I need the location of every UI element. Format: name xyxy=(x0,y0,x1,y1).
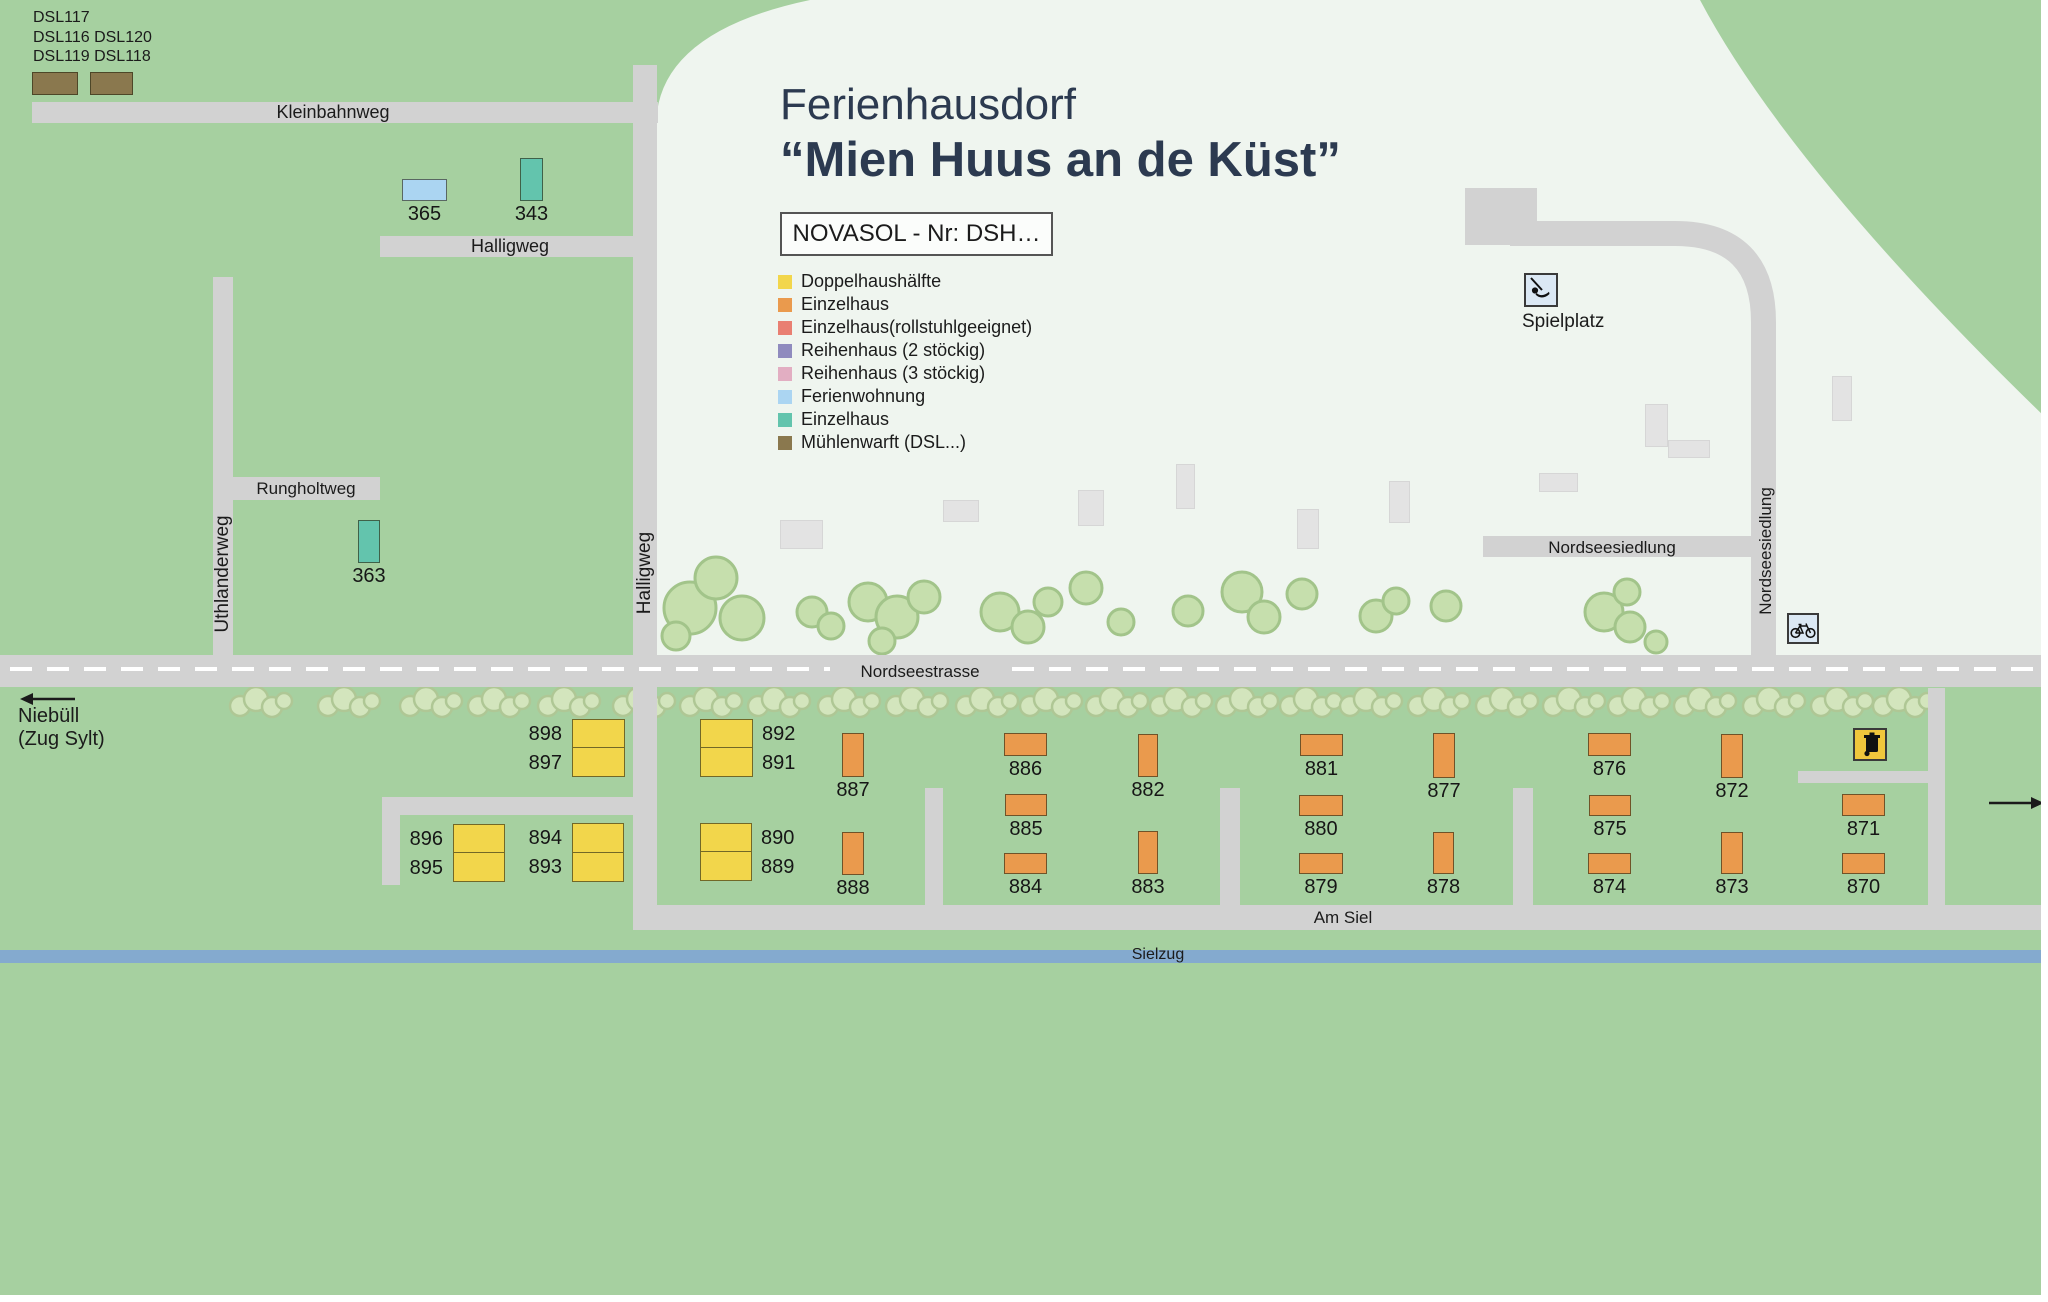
tree xyxy=(1230,687,1254,711)
tree xyxy=(500,697,520,717)
tree xyxy=(613,696,633,716)
tree xyxy=(876,596,918,638)
tree xyxy=(514,693,530,709)
tree xyxy=(1843,697,1863,717)
nordseesiedlung-curve-road xyxy=(1510,234,1764,658)
road-center-dash-left xyxy=(10,667,830,671)
tree xyxy=(1431,591,1461,621)
tree-group-row xyxy=(230,687,1935,717)
page-title-line1: Ferienhausdorf xyxy=(780,80,1076,130)
tree xyxy=(797,597,827,627)
house-number: 343 xyxy=(492,203,572,226)
tree xyxy=(1873,696,1893,716)
building xyxy=(780,520,823,549)
waste-bin-glyph xyxy=(1857,731,1884,758)
tree xyxy=(1248,601,1280,633)
legend-item: Mühlenwarft (DSL...) xyxy=(778,431,1032,454)
tree xyxy=(1020,696,1040,716)
dsl-line: DSL117 xyxy=(33,8,152,28)
tree xyxy=(762,687,786,711)
double-house-divider xyxy=(573,720,624,748)
tree xyxy=(1386,693,1402,709)
waste-bin-icon xyxy=(1853,728,1887,761)
village-light-area xyxy=(657,0,2048,655)
destination-label-niebuell: Niebüll xyxy=(18,705,79,728)
tree xyxy=(695,557,737,599)
house-number: 878 xyxy=(1404,876,1484,899)
sielzug-water xyxy=(0,950,2048,963)
legend-swatch xyxy=(778,344,792,358)
tree xyxy=(1706,697,1726,717)
tree xyxy=(1589,693,1605,709)
double-house-892-891 xyxy=(700,719,753,777)
legend-item: Einzelhaus(rollstuhlgeeignet) xyxy=(778,316,1032,339)
house-877 xyxy=(1433,733,1455,778)
house-875 xyxy=(1589,795,1631,816)
tree xyxy=(1118,697,1138,717)
tree xyxy=(1150,696,1170,716)
house-number: 892 xyxy=(762,723,834,746)
tree xyxy=(664,582,716,634)
tree xyxy=(1640,697,1660,717)
road-segment xyxy=(633,905,2048,930)
legend-swatch xyxy=(778,390,792,404)
house-365 xyxy=(402,179,447,201)
house-number: 897 xyxy=(490,752,562,775)
road-segment xyxy=(1483,536,1757,557)
tree xyxy=(932,693,948,709)
legend-label: Reihenhaus (2 stöckig) xyxy=(801,340,985,361)
tree xyxy=(1543,696,1563,716)
tree xyxy=(1857,693,1873,709)
legend-swatch xyxy=(778,413,792,427)
tree xyxy=(1476,696,1496,716)
page-edge-bottom xyxy=(0,1295,2048,1302)
legend-swatch xyxy=(778,321,792,335)
house-884 xyxy=(1004,853,1047,874)
house-number: 365 xyxy=(385,203,465,226)
tree xyxy=(850,697,870,717)
house-number: 887 xyxy=(813,779,893,802)
house-878 xyxy=(1433,832,1454,874)
tree xyxy=(570,697,590,717)
road-segment xyxy=(382,797,400,885)
tree xyxy=(1280,696,1300,716)
tree xyxy=(1825,687,1849,711)
tree xyxy=(1440,697,1460,717)
legend-item: Ferienwohnung xyxy=(778,385,1032,408)
tree xyxy=(1070,572,1102,604)
tree xyxy=(1522,693,1538,709)
tree xyxy=(1743,696,1763,716)
page-title-line2: “Mien Huus an de Küst” xyxy=(780,132,1341,188)
tree xyxy=(1034,588,1062,616)
tree xyxy=(276,693,292,709)
tree xyxy=(1196,693,1212,709)
tree xyxy=(1216,696,1236,716)
building xyxy=(1645,404,1668,447)
tree xyxy=(262,697,282,717)
house-number: 885 xyxy=(986,818,1066,841)
tree xyxy=(414,687,438,711)
legend-item: Einzelhaus xyxy=(778,408,1032,431)
tree xyxy=(1720,693,1736,709)
tree xyxy=(230,696,250,716)
house-number: 896 xyxy=(371,828,443,851)
tree xyxy=(482,687,506,711)
tree xyxy=(712,697,732,717)
legend-label: Mühlenwarft (DSL...) xyxy=(801,432,966,453)
building xyxy=(1389,481,1410,523)
tree xyxy=(1775,697,1795,717)
legend-label: Doppelhaushälfte xyxy=(801,271,941,292)
double-house-896-895 xyxy=(453,824,505,882)
double-house-divider xyxy=(701,720,752,748)
tree xyxy=(552,687,576,711)
road-center-dash-right xyxy=(1012,667,2040,671)
tree xyxy=(1326,693,1342,709)
double-house-divider xyxy=(454,825,504,853)
tree xyxy=(864,693,880,709)
tree xyxy=(318,696,338,716)
house-number: 879 xyxy=(1281,876,1361,899)
tree xyxy=(1383,588,1409,614)
house-879 xyxy=(1299,853,1343,874)
house-887 xyxy=(842,733,864,777)
tree xyxy=(1688,687,1712,711)
house-number: 873 xyxy=(1692,876,1772,899)
building xyxy=(1176,464,1195,509)
tree xyxy=(780,697,800,717)
tree xyxy=(908,581,940,613)
house-343 xyxy=(520,158,543,201)
tree xyxy=(645,697,665,717)
tree xyxy=(1360,600,1392,632)
house-number: 889 xyxy=(761,856,833,879)
road-segment xyxy=(633,65,657,930)
novasol-number-box: NOVASOL - Nr: DSH… xyxy=(780,212,1053,256)
road-label-rungholtweg: Rungholtweg xyxy=(226,479,386,499)
tree xyxy=(1490,687,1514,711)
tree xyxy=(832,687,856,711)
tree xyxy=(694,687,718,711)
house-number: 890 xyxy=(761,827,833,850)
tree xyxy=(970,687,994,711)
house-873 xyxy=(1721,832,1743,874)
tree xyxy=(1354,687,1378,711)
road-segment xyxy=(1220,788,1240,905)
house-number: 891 xyxy=(762,752,834,775)
house-number: 881 xyxy=(1282,758,1362,781)
arrow-right-icon xyxy=(1988,796,2044,810)
bicycle-icon xyxy=(1787,613,1819,644)
tree xyxy=(1508,697,1528,717)
house-number: 894 xyxy=(490,827,562,850)
tree xyxy=(1132,693,1148,709)
building xyxy=(1297,509,1319,549)
tree xyxy=(818,613,844,639)
building xyxy=(1832,376,1852,421)
tree xyxy=(1034,687,1058,711)
road-label-kleinbahnweg: Kleinbahnweg xyxy=(233,102,433,123)
tree xyxy=(1052,697,1072,717)
legend-label: Ferienwohnung xyxy=(801,386,925,407)
tree-group-large xyxy=(662,557,1667,654)
house-number: 872 xyxy=(1692,780,1772,803)
house-881 xyxy=(1300,734,1343,756)
house-363 xyxy=(358,520,380,563)
tree xyxy=(364,693,380,709)
legend-swatch xyxy=(778,275,792,289)
building xyxy=(1539,473,1578,492)
labels-layer: DSL117 DSL116 DSL120 DSL119 DSL118 Klein… xyxy=(0,0,2048,1302)
legend-swatch xyxy=(778,367,792,381)
tree xyxy=(1757,687,1781,711)
tree xyxy=(1340,696,1360,716)
tree xyxy=(1248,697,1268,717)
tree xyxy=(1294,687,1318,711)
tree xyxy=(446,693,462,709)
house-number: 895 xyxy=(371,857,443,880)
houses-layer: 3653433638878888868858848828838818808798… xyxy=(0,0,2048,1302)
tree xyxy=(1557,687,1581,711)
tree xyxy=(886,696,906,716)
house-number: 876 xyxy=(1570,758,1650,781)
tree xyxy=(1312,697,1332,717)
dsl-area-labels: DSL117 DSL116 DSL120 DSL119 DSL118 xyxy=(33,8,152,67)
house-886 xyxy=(1004,733,1047,756)
house-number: 363 xyxy=(329,565,409,588)
dsl-line: DSL116 DSL120 xyxy=(33,28,152,48)
road-label-nordseestrasse: Nordseestrasse xyxy=(820,662,1020,682)
poi-label-spielplatz: Spielplatz xyxy=(1522,311,1604,333)
tree xyxy=(1585,593,1623,631)
buildings-layer xyxy=(0,0,2048,1302)
tree xyxy=(1789,693,1805,709)
tree xyxy=(350,697,370,717)
house-888 xyxy=(842,832,864,875)
house-885 xyxy=(1005,794,1047,816)
tree xyxy=(748,696,768,716)
tree xyxy=(584,693,600,709)
icons-layer xyxy=(0,0,2048,1302)
house-number: 893 xyxy=(490,856,562,879)
tree xyxy=(794,693,810,709)
base-map-layer xyxy=(0,0,2048,1302)
tree xyxy=(662,622,690,650)
road-segment xyxy=(233,477,380,500)
legend-label: Einzelhaus(rollstuhlgeeignet) xyxy=(801,317,1032,338)
road-segment xyxy=(213,277,233,655)
building xyxy=(1078,490,1104,526)
tree xyxy=(1454,693,1470,709)
legend-label: Einzelhaus xyxy=(801,294,889,315)
site-map: 3653433638878888868858848828838818808798… xyxy=(0,0,2048,1302)
tree xyxy=(849,583,887,621)
tree xyxy=(981,593,1019,631)
house-number: 877 xyxy=(1404,780,1484,803)
tree xyxy=(1919,693,1935,709)
legend-swatch xyxy=(778,298,792,312)
house-880 xyxy=(1299,795,1343,816)
tree xyxy=(1811,696,1831,716)
house-882 xyxy=(1138,734,1158,777)
road-segment xyxy=(0,655,2048,687)
tree xyxy=(400,696,420,716)
tree xyxy=(332,687,356,711)
legend-label: Einzelhaus xyxy=(801,409,889,430)
tree xyxy=(1674,696,1694,716)
tree xyxy=(1622,687,1646,711)
road-label-halligweg-vertical: Halligweg xyxy=(634,532,656,614)
road-label-uthlanderweg: Uthlanderweg xyxy=(212,515,234,632)
legend-item: Einzelhaus xyxy=(778,293,1032,316)
road-segment xyxy=(32,102,658,123)
tree xyxy=(900,687,924,711)
tree xyxy=(1905,697,1925,717)
house-883 xyxy=(1138,831,1158,874)
road-segment xyxy=(382,797,657,815)
double-house-894-893 xyxy=(572,823,624,882)
legend-item: Reihenhaus (2 stöckig) xyxy=(778,339,1032,362)
tree xyxy=(680,696,700,716)
tree xyxy=(432,697,452,717)
tree xyxy=(1887,687,1911,711)
tree xyxy=(1262,693,1278,709)
tree xyxy=(1372,697,1392,717)
house-number: 880 xyxy=(1281,818,1361,841)
double-house-divider xyxy=(701,824,751,852)
road-segment xyxy=(925,788,943,905)
tree xyxy=(1575,697,1595,717)
house-number: 870 xyxy=(1824,876,1904,899)
tree xyxy=(1654,693,1670,709)
tree xyxy=(918,697,938,717)
tree xyxy=(538,696,558,716)
road-segment xyxy=(380,236,657,257)
legend-item: Doppelhaushälfte xyxy=(778,270,1032,293)
house-number: 886 xyxy=(986,758,1066,781)
double-house-890-889 xyxy=(700,823,752,881)
road-label-am-siel: Am Siel xyxy=(1263,908,1423,928)
tree xyxy=(1066,693,1082,709)
tree xyxy=(1002,693,1018,709)
tree xyxy=(726,693,742,709)
house-muehlenwarft xyxy=(90,72,133,95)
page-edge-right xyxy=(2041,0,2048,1302)
map-legend: DoppelhaushälfteEinzelhausEinzelhaus(rol… xyxy=(778,270,1032,454)
house-number: 898 xyxy=(490,723,562,746)
road-label-nordseesiedlung-vertical: Nordseesiedlung xyxy=(1756,487,1776,615)
road-segment xyxy=(1798,771,1928,783)
house-number: 884 xyxy=(986,876,1066,899)
house-muehlenwarft xyxy=(32,72,78,95)
road-segment xyxy=(1513,788,1533,905)
tree xyxy=(1408,696,1428,716)
house-872 xyxy=(1721,734,1743,778)
double-house-898-897 xyxy=(572,719,625,777)
tree xyxy=(1164,687,1188,711)
tree xyxy=(956,696,976,716)
tree xyxy=(468,696,488,716)
tree xyxy=(818,696,838,716)
house-871 xyxy=(1842,794,1885,816)
house-870 xyxy=(1842,853,1885,874)
tree xyxy=(869,628,895,654)
tree xyxy=(1222,572,1262,612)
road-label-halligweg-horizontal: Halligweg xyxy=(410,236,610,257)
tree xyxy=(244,687,268,711)
building xyxy=(943,500,979,522)
dsl-line: DSL119 DSL118 xyxy=(33,47,152,67)
tree xyxy=(1615,612,1645,642)
legend-swatch xyxy=(778,436,792,450)
bicycle-glyph xyxy=(1790,619,1816,639)
swing-icon xyxy=(1527,276,1555,304)
house-number: 874 xyxy=(1570,876,1650,899)
road-segment xyxy=(1465,188,1537,245)
house-number: 875 xyxy=(1570,818,1650,841)
tree xyxy=(1422,687,1446,711)
tree xyxy=(627,687,651,711)
double-house-divider xyxy=(573,824,623,853)
tree xyxy=(1645,631,1667,653)
tree xyxy=(988,697,1008,717)
tree xyxy=(1182,697,1202,717)
house-number: 888 xyxy=(813,877,893,900)
road-segment xyxy=(1928,688,1945,905)
tree xyxy=(1614,579,1640,605)
tree xyxy=(1100,687,1124,711)
house-876 xyxy=(1588,733,1631,756)
tree xyxy=(659,693,675,709)
tree xyxy=(1287,579,1317,609)
road-label-nordseesiedlung-horizontal: Nordseesiedlung xyxy=(1512,538,1712,558)
building xyxy=(1668,440,1710,458)
arrow-left-icon xyxy=(20,692,76,706)
house-number: 883 xyxy=(1108,876,1188,899)
legend-item: Reihenhaus (3 stöckig) xyxy=(778,362,1032,385)
destination-label-zug-sylt: (Zug Sylt) xyxy=(18,728,105,751)
house-number: 882 xyxy=(1108,779,1188,802)
house-number: 871 xyxy=(1824,818,1904,841)
playground-icon xyxy=(1524,273,1558,307)
tree xyxy=(1173,596,1203,626)
legend-label: Reihenhaus (3 stöckig) xyxy=(801,363,985,384)
house-874 xyxy=(1588,853,1631,874)
roads-layer xyxy=(0,0,2048,1302)
tree xyxy=(1012,611,1044,643)
tree xyxy=(1608,696,1628,716)
tree xyxy=(720,596,764,640)
tree xyxy=(1086,696,1106,716)
tree xyxy=(1108,609,1134,635)
